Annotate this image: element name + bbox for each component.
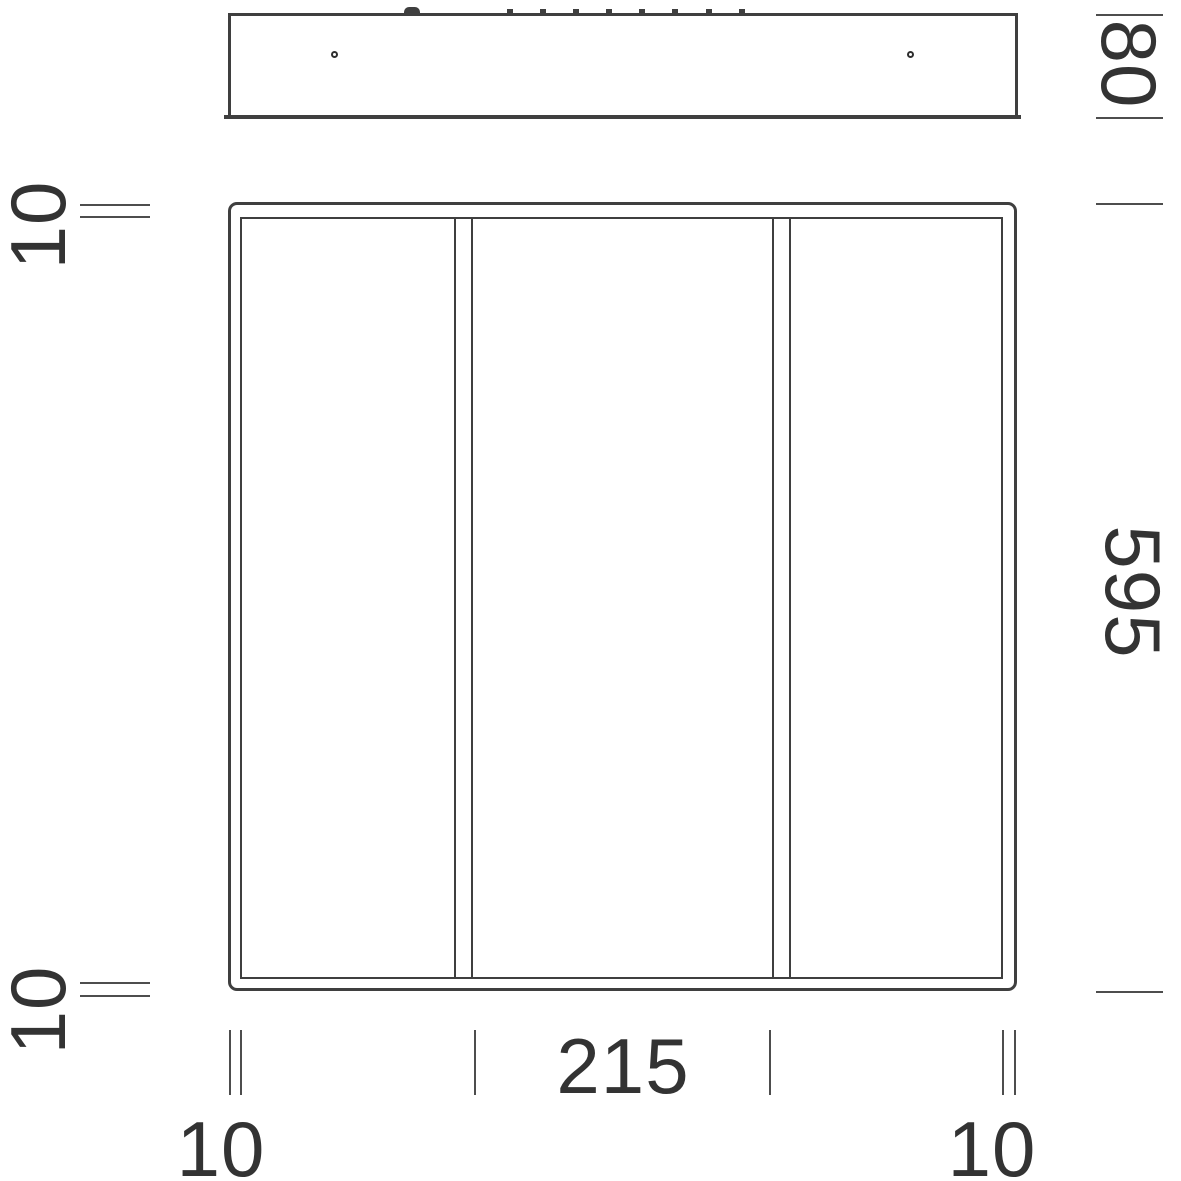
dimension-tick [80,204,150,206]
dimension-tick [1014,1030,1016,1095]
dimension-tick [1002,1030,1004,1095]
dim-label-frame-bottom: 10 [0,966,77,1055]
dimension-tick [1096,14,1163,16]
dimension-tick [80,995,150,997]
dimension-tick [80,982,150,984]
dim-label-profile-height: 80 [1090,20,1168,109]
panel-divider-line [772,219,774,977]
dimension-tick [240,1030,242,1095]
mounting-hole-icon [331,51,338,58]
dim-label-panel-size: 595 [1094,525,1172,658]
dimension-tick [1096,117,1163,119]
dim-label-frame-top: 10 [0,181,77,270]
mounting-hole-icon [907,51,914,58]
dimension-tick [769,1030,771,1095]
dimension-tick [229,1030,231,1095]
dimension-tick [80,216,150,218]
profile-face-line [224,115,1021,119]
dim-label-frame-left: 10 [177,1110,266,1181]
dim-label-center-width: 215 [556,1027,689,1105]
panel-divider-line [454,219,456,977]
panel-divider-line [789,219,791,977]
dimension-tick [1096,991,1163,993]
dimension-tick [1096,203,1163,205]
drawing-canvas: 80 595 10 10 215 10 10 [0,0,1181,1181]
front-inner-frame [240,217,1003,979]
profile-body-outline [228,13,1018,118]
dim-label-frame-right: 10 [948,1110,1037,1181]
panel-divider-line [471,219,473,977]
dimension-tick [474,1030,476,1095]
